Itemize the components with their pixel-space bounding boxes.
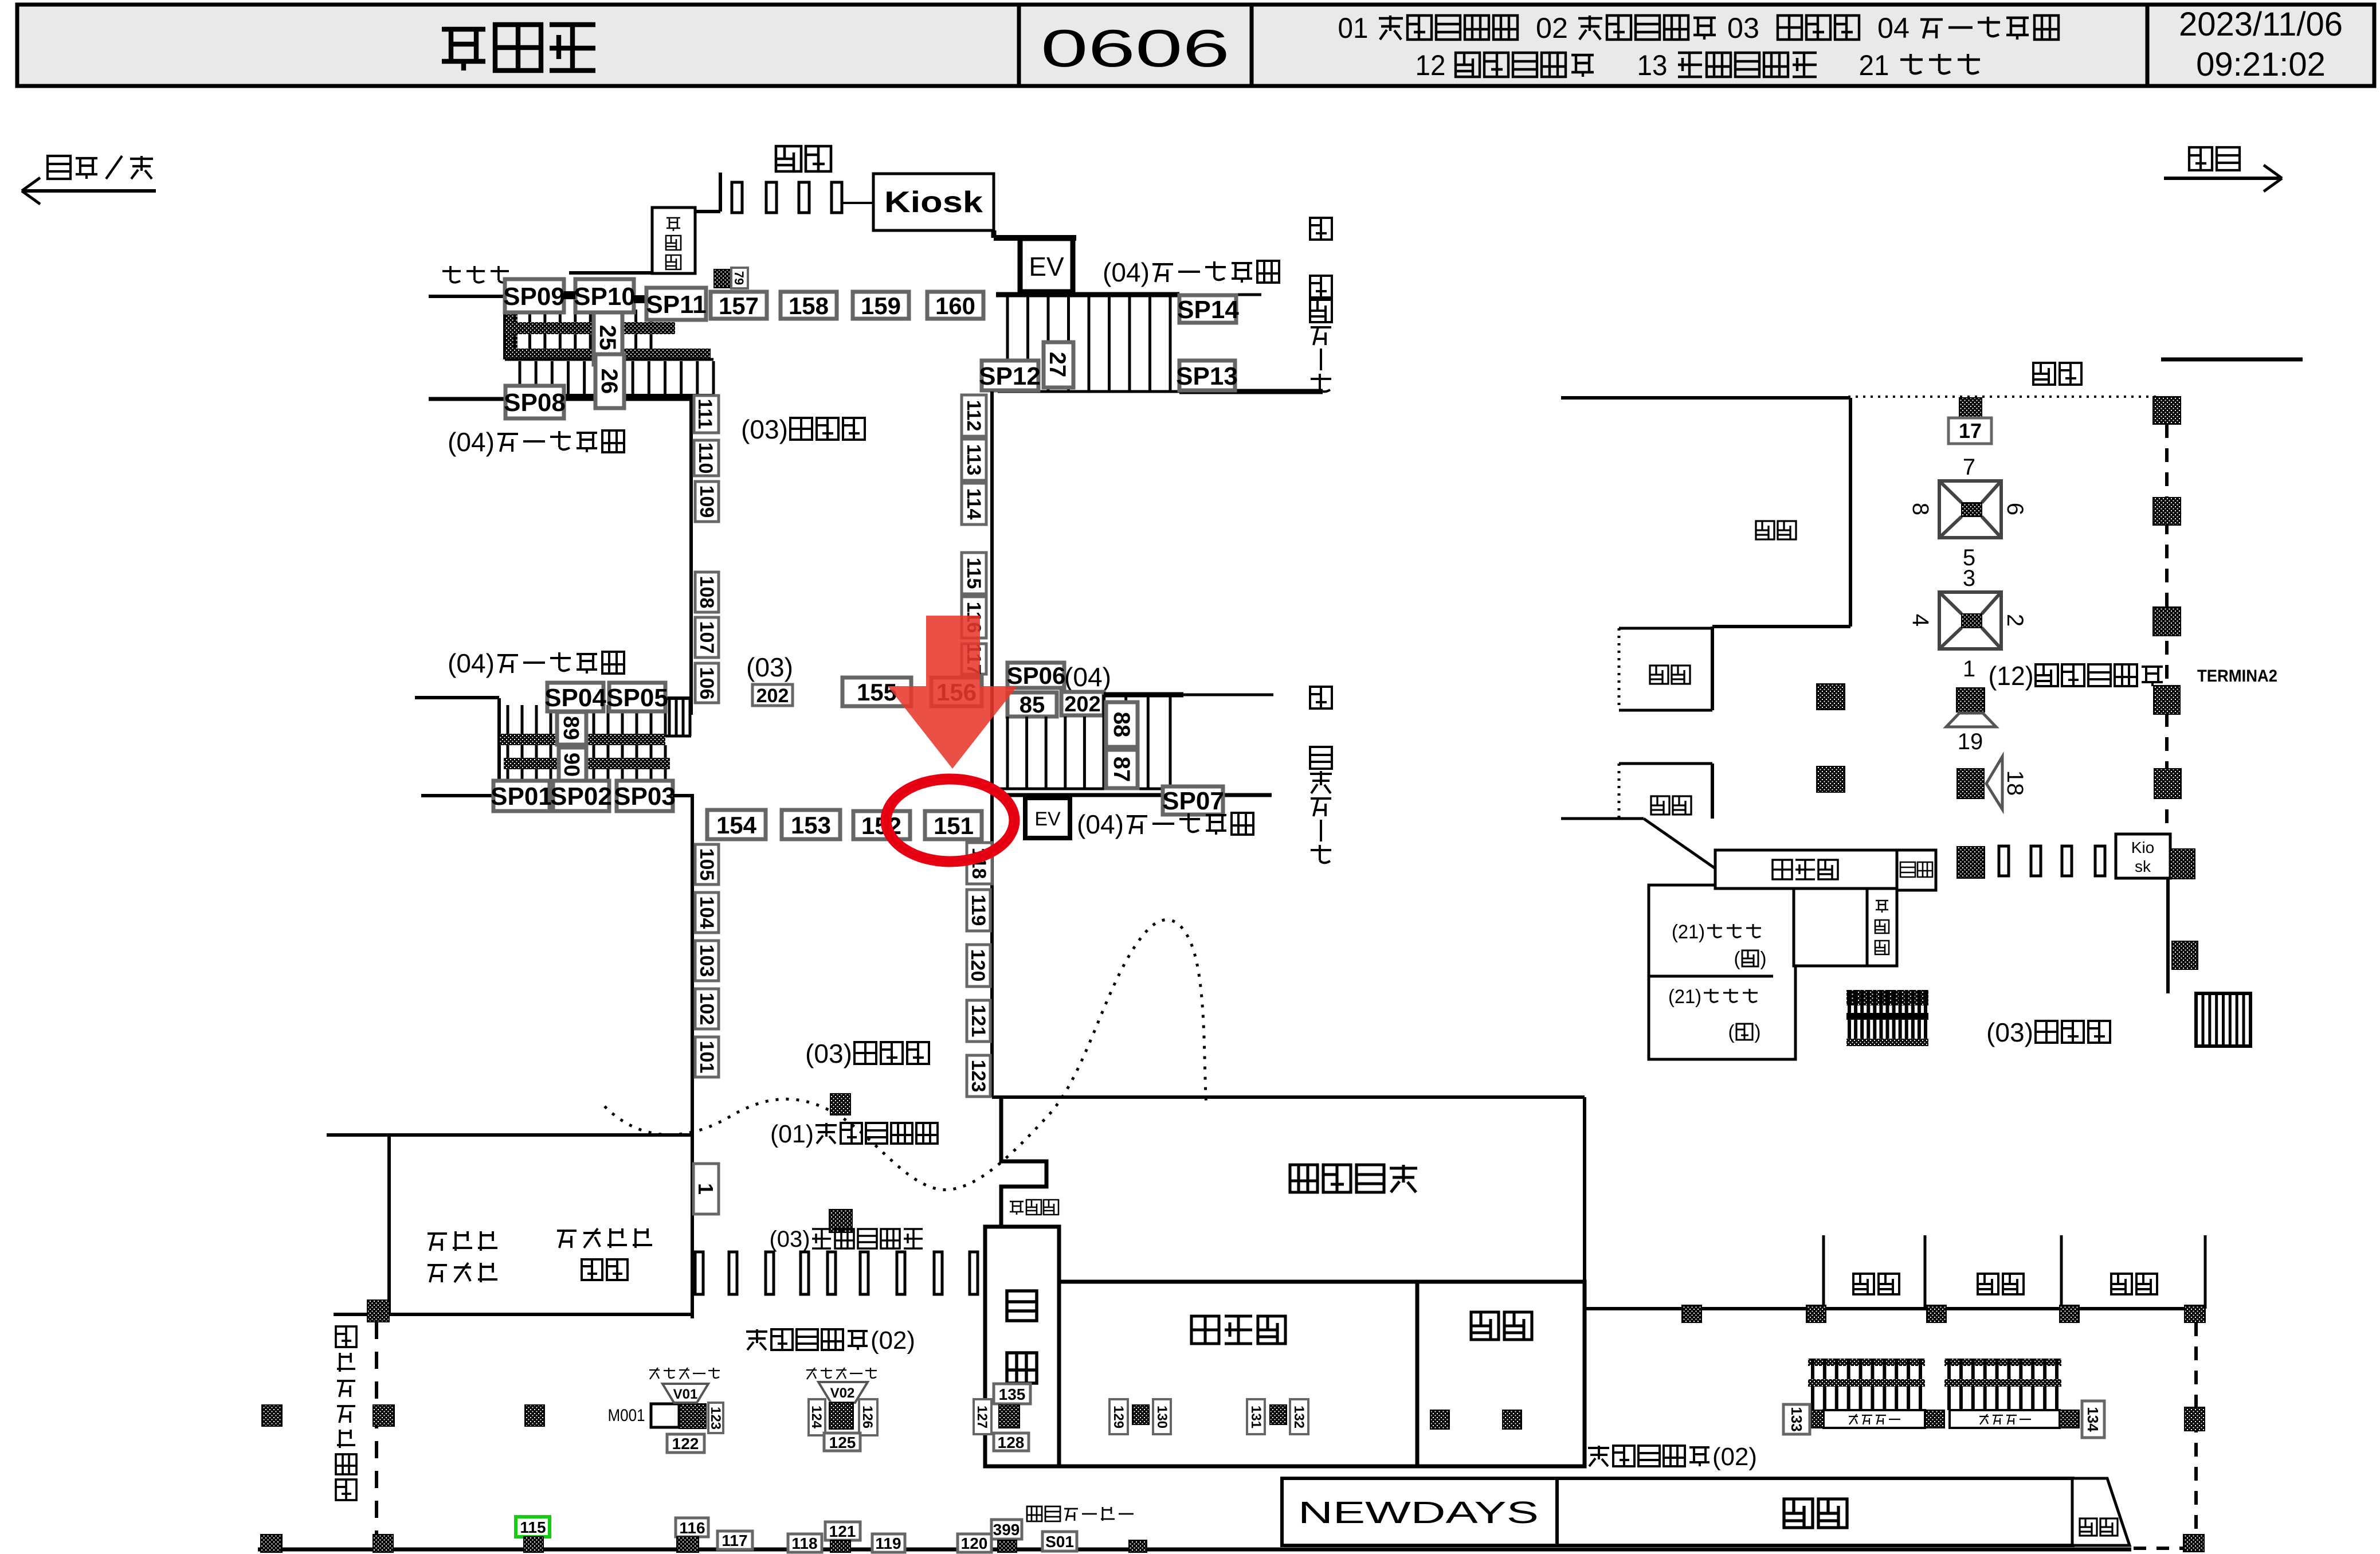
- svg-text:SP09: SP09: [503, 283, 565, 311]
- svg-text:17: 17: [1959, 419, 1982, 443]
- svg-text:): ): [1755, 1021, 1761, 1043]
- svg-text:M001: M001: [608, 1406, 645, 1425]
- svg-text:117: 117: [722, 1532, 747, 1549]
- svg-text:106: 106: [696, 667, 717, 700]
- svg-text:160: 160: [935, 292, 975, 319]
- svg-text:25: 25: [595, 325, 620, 351]
- svg-text:121: 121: [967, 1005, 989, 1038]
- svg-text:13: 13: [1637, 49, 1668, 81]
- svg-text:129: 129: [1111, 1406, 1126, 1428]
- svg-text:79: 79: [732, 271, 746, 285]
- svg-text:115: 115: [520, 1518, 546, 1536]
- svg-text:126: 126: [860, 1406, 875, 1428]
- svg-text:3: 3: [1963, 566, 1975, 591]
- svg-text:12: 12: [1416, 49, 1446, 81]
- svg-text:19: 19: [1958, 729, 1983, 754]
- svg-text:(03): (03): [770, 1227, 810, 1252]
- svg-text:2023/11/06: 2023/11/06: [2179, 6, 2343, 43]
- svg-text:02: 02: [1536, 12, 1568, 44]
- svg-text:115: 115: [963, 558, 985, 589]
- svg-text:88: 88: [1109, 712, 1134, 738]
- svg-text:202: 202: [1064, 692, 1100, 717]
- svg-text:(21): (21): [1668, 986, 1701, 1008]
- svg-text:(21): (21): [1672, 921, 1705, 943]
- svg-text:119: 119: [967, 895, 989, 926]
- svg-text:(03): (03): [1986, 1017, 2033, 1047]
- svg-text:85: 85: [1020, 692, 1045, 718]
- svg-text:(04): (04): [1064, 662, 1111, 692]
- svg-text:128: 128: [998, 1434, 1025, 1451]
- svg-text:122: 122: [672, 1435, 699, 1453]
- svg-text:123: 123: [967, 1060, 989, 1093]
- svg-text:151: 151: [934, 812, 974, 839]
- svg-text:116: 116: [679, 1519, 705, 1537]
- svg-text:(03): (03): [746, 652, 793, 682]
- svg-text:03: 03: [1727, 12, 1759, 44]
- svg-text:4: 4: [1908, 614, 1933, 627]
- svg-text:(12): (12): [1989, 661, 2034, 691]
- svg-text:sk: sk: [2135, 858, 2151, 875]
- svg-text:SP12: SP12: [979, 362, 1041, 390]
- svg-text:): ): [1761, 948, 1767, 970]
- svg-text:V01: V01: [673, 1387, 698, 1402]
- svg-text:SP13: SP13: [1176, 362, 1238, 390]
- svg-text:(04): (04): [448, 427, 495, 457]
- svg-text:118: 118: [791, 1535, 817, 1552]
- svg-text:103: 103: [696, 945, 717, 977]
- svg-text:0606: 0606: [1041, 19, 1230, 78]
- svg-text:102: 102: [696, 993, 717, 1025]
- svg-text:113: 113: [963, 444, 985, 476]
- svg-text:EV: EV: [1034, 808, 1061, 830]
- svg-text:(: (: [1728, 1021, 1735, 1043]
- svg-text:121: 121: [829, 1522, 856, 1540]
- svg-text:132: 132: [1291, 1406, 1307, 1428]
- svg-text:101: 101: [696, 1041, 717, 1074]
- svg-text:89: 89: [559, 716, 583, 740]
- svg-text:134: 134: [2084, 1407, 2101, 1432]
- svg-text:119: 119: [875, 1535, 901, 1552]
- svg-text:Kiosk: Kiosk: [884, 186, 983, 219]
- svg-text:131: 131: [1248, 1406, 1264, 1428]
- svg-text:1: 1: [1963, 656, 1975, 682]
- svg-text:127: 127: [974, 1406, 990, 1428]
- svg-text:108: 108: [696, 576, 717, 609]
- svg-text:S01: S01: [1045, 1533, 1074, 1551]
- svg-text:SP08: SP08: [504, 389, 566, 417]
- svg-text:130: 130: [1154, 1406, 1170, 1428]
- svg-text:SP11: SP11: [646, 291, 706, 319]
- svg-text:SP06: SP06: [1007, 662, 1066, 689]
- svg-text:18: 18: [2002, 770, 2028, 796]
- svg-text:111: 111: [694, 399, 716, 429]
- svg-text:SP04: SP04: [544, 684, 606, 712]
- svg-text:159: 159: [861, 292, 901, 319]
- svg-text:(01): (01): [770, 1120, 814, 1148]
- svg-text:(04): (04): [1077, 809, 1124, 839]
- svg-text:(04): (04): [448, 648, 495, 678]
- svg-text:120: 120: [967, 949, 989, 982]
- svg-text:155: 155: [857, 679, 897, 706]
- svg-text:6: 6: [2002, 503, 2028, 515]
- svg-text:SP01: SP01: [491, 782, 552, 811]
- svg-text:V02: V02: [830, 1385, 855, 1401]
- svg-text:154: 154: [716, 812, 757, 839]
- svg-text:125: 125: [829, 1434, 856, 1451]
- svg-text:123: 123: [708, 1407, 723, 1430]
- svg-text:09:21:02: 09:21:02: [2196, 46, 2326, 83]
- svg-text:105: 105: [696, 848, 717, 881]
- svg-text:120: 120: [961, 1535, 988, 1552]
- svg-text:114: 114: [963, 488, 985, 520]
- svg-text:1: 1: [694, 1183, 717, 1195]
- svg-text:(04): (04): [1103, 257, 1150, 287]
- svg-text:26: 26: [597, 369, 622, 394]
- svg-text:EV: EV: [1029, 252, 1064, 281]
- svg-text:Kio: Kio: [2131, 839, 2154, 856]
- svg-text:109: 109: [696, 486, 717, 518]
- svg-text:SP07: SP07: [1162, 787, 1224, 815]
- svg-text:133: 133: [1788, 1407, 1805, 1431]
- svg-text:TERMINA2: TERMINA2: [2197, 667, 2277, 686]
- svg-text:90: 90: [559, 753, 583, 777]
- svg-text:(: (: [1734, 948, 1741, 970]
- svg-text:8: 8: [1908, 503, 1933, 515]
- svg-text:157: 157: [719, 292, 759, 319]
- svg-text:04: 04: [1877, 12, 1910, 44]
- svg-text:SP10: SP10: [574, 283, 636, 311]
- svg-text:153: 153: [791, 812, 831, 839]
- svg-text:110: 110: [695, 443, 716, 474]
- svg-text:2: 2: [2002, 614, 2028, 627]
- svg-text:SP05: SP05: [606, 684, 668, 712]
- svg-text:(03): (03): [805, 1039, 852, 1068]
- svg-text:01: 01: [1338, 12, 1369, 44]
- svg-text:(02): (02): [871, 1326, 915, 1355]
- svg-text:SP03: SP03: [614, 782, 676, 811]
- svg-text:399: 399: [993, 1521, 1020, 1539]
- svg-text:SP14: SP14: [1177, 296, 1239, 324]
- svg-text:202: 202: [756, 685, 789, 707]
- svg-text:104: 104: [696, 897, 717, 929]
- svg-text:21: 21: [1859, 49, 1889, 81]
- svg-text:158: 158: [789, 292, 829, 319]
- svg-text:112: 112: [963, 400, 985, 432]
- svg-text:SP02: SP02: [550, 782, 612, 811]
- svg-text:107: 107: [696, 621, 717, 654]
- svg-text:87: 87: [1109, 757, 1134, 782]
- svg-text:NEWDAYS: NEWDAYS: [1298, 1496, 1539, 1530]
- svg-text:27: 27: [1045, 352, 1070, 378]
- svg-text:124: 124: [809, 1406, 824, 1429]
- svg-text:135: 135: [999, 1385, 1026, 1403]
- svg-text:(03): (03): [741, 414, 788, 444]
- svg-text:(02): (02): [1712, 1443, 1757, 1471]
- svg-text:7: 7: [1963, 455, 1975, 480]
